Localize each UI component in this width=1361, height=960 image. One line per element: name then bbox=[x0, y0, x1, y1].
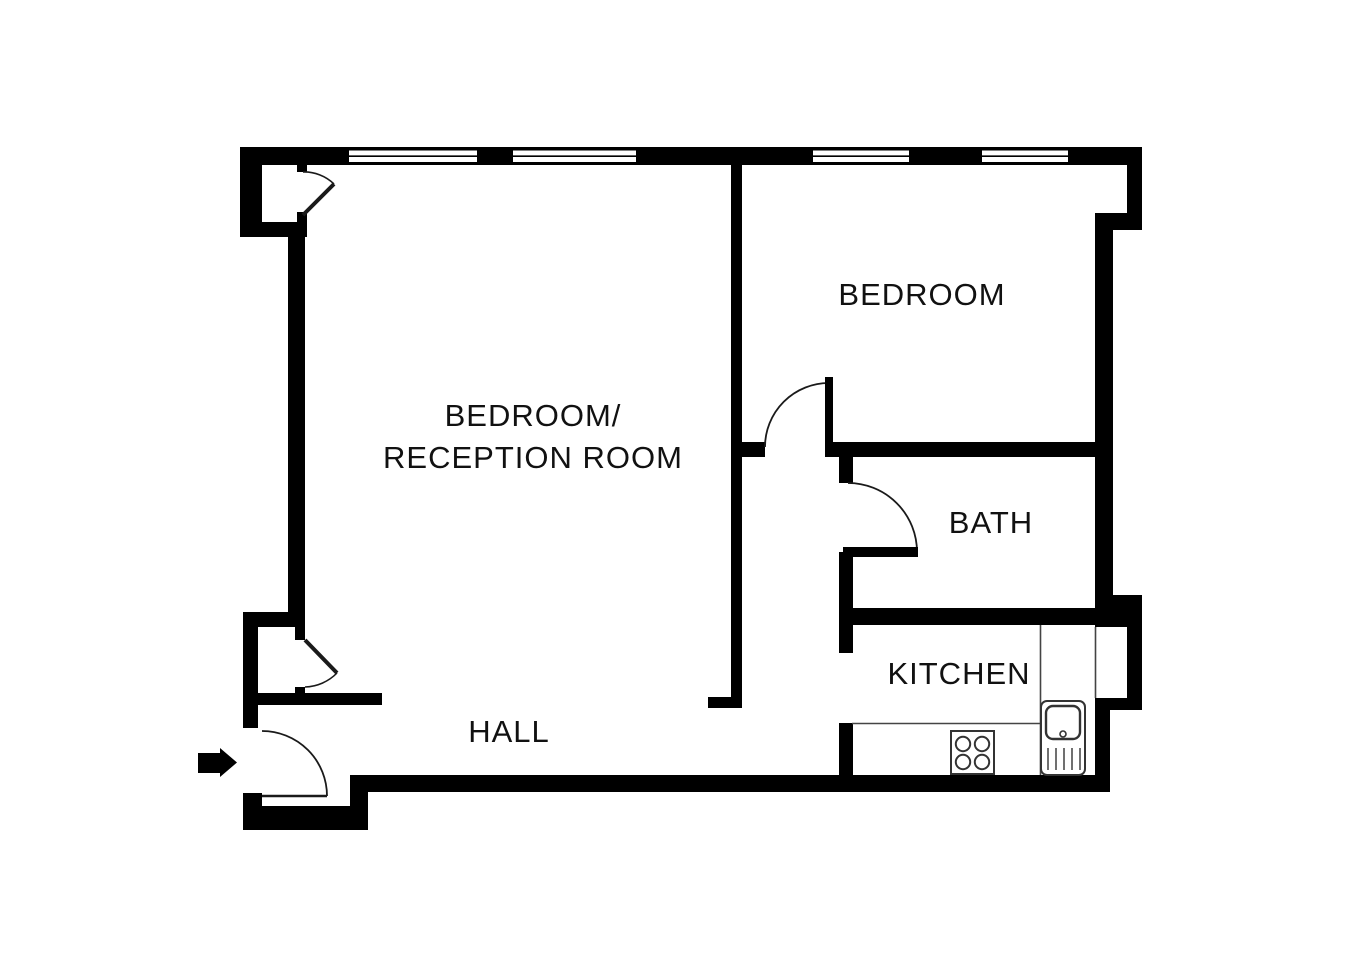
walls bbox=[240, 147, 1142, 830]
wall-right-kitchen bbox=[1095, 710, 1110, 792]
wall-right-notch bbox=[1127, 627, 1142, 710]
wall-bedroom-stub bbox=[731, 442, 765, 457]
wall-notch-bottom bbox=[1095, 698, 1142, 710]
wall-topleft-bottom bbox=[240, 222, 307, 237]
door-jamb bbox=[295, 627, 305, 640]
stove-hob-icon bbox=[951, 731, 994, 774]
bedroom-door-icon bbox=[765, 377, 833, 447]
closet-door-icon bbox=[305, 640, 337, 687]
entrance-arrow-icon bbox=[198, 748, 237, 777]
wall-hall-reception bbox=[258, 693, 382, 705]
wall-left bbox=[288, 237, 305, 612]
room-label-reception: BEDROOM/ RECEPTION ROOM bbox=[383, 395, 683, 479]
window-icon bbox=[349, 151, 477, 163]
floor-plan: BEDROOM/ RECEPTION ROOM BEDROOM BATH KIT… bbox=[0, 0, 1361, 960]
entrance-door-icon bbox=[262, 731, 327, 796]
wall-divider-foot bbox=[708, 697, 742, 708]
room-label-kitchen: KITCHEN bbox=[887, 653, 1030, 695]
wall-bath-left bbox=[839, 552, 853, 653]
window-icon bbox=[813, 151, 909, 163]
window-icon bbox=[982, 151, 1068, 163]
wall-kitchen-left bbox=[839, 723, 853, 778]
bath-door-icon bbox=[843, 483, 918, 557]
room-label-hall: HALL bbox=[468, 711, 550, 753]
room-label-bedroom: BEDROOM bbox=[838, 274, 1005, 316]
door-jamb bbox=[297, 162, 307, 172]
reception-label-line1: BEDROOM/ bbox=[445, 398, 622, 433]
wall-right bbox=[1095, 230, 1113, 608]
wall-bedroom-bottom bbox=[825, 442, 1095, 457]
door-jamb bbox=[243, 793, 262, 806]
room-label-bath: BATH bbox=[949, 502, 1033, 544]
floor-plan-drawing bbox=[0, 0, 1361, 960]
wall-bath-kitchen bbox=[839, 608, 1110, 625]
window-icon bbox=[513, 151, 636, 163]
wall-closet-left bbox=[243, 612, 258, 728]
door-jamb bbox=[295, 687, 305, 694]
wall-divider bbox=[731, 165, 742, 697]
wall-bottom bbox=[350, 775, 1110, 792]
wall-porch bbox=[243, 806, 368, 830]
kitchen-fixtures bbox=[852, 625, 1096, 775]
cupboard-door-icon bbox=[303, 172, 334, 215]
sink-drainer-icon bbox=[1041, 701, 1085, 775]
wall-bath-left-top bbox=[839, 442, 853, 483]
wall-right-step bbox=[1095, 213, 1142, 230]
reception-label-line2: RECEPTION ROOM bbox=[383, 440, 683, 475]
